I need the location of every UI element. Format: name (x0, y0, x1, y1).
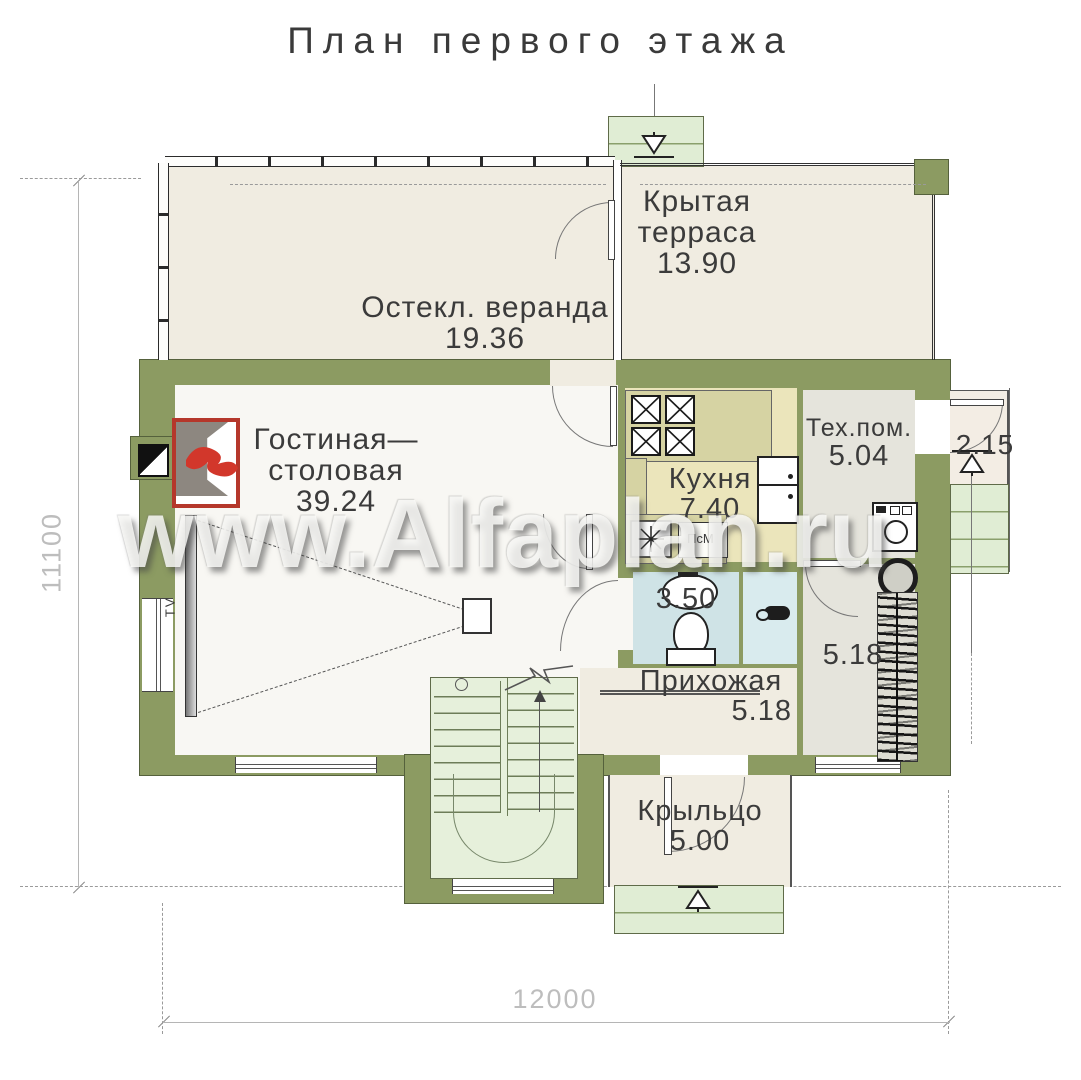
toilet-tank (666, 648, 716, 666)
veranda-label: Остекл. веранда 19.36 (345, 292, 625, 354)
floor-plan: 11100 12000 План первого этажа (0, 0, 1081, 1080)
entry-arrow-icon (632, 132, 676, 160)
terrace-post (915, 160, 948, 194)
door-opening (660, 755, 748, 775)
terrace-area: 13.90 (607, 248, 787, 279)
side-porch-label: 2.15 (930, 430, 1040, 459)
watermark: www.Alfaplan.ru (118, 478, 889, 590)
stove-icon (630, 394, 698, 458)
door-leaf (610, 386, 617, 446)
tv-label: TV (164, 596, 178, 617)
dimension-tick (73, 174, 85, 186)
hallway-label: Прихожая 5.18 (616, 666, 806, 726)
veranda-area: 19.36 (345, 323, 625, 354)
side-porch-edge (1009, 388, 1010, 572)
side-porch-steps (950, 484, 1009, 574)
axis-line (20, 178, 141, 179)
tech-area: 5.04 (801, 441, 917, 471)
page-title: План первого этажа (0, 20, 1081, 62)
veranda-glazed-wall-top (165, 156, 615, 167)
axis-line (971, 653, 972, 744)
door-leaf (950, 399, 1004, 406)
axis-line (971, 468, 972, 653)
entry-porch-area: 5.00 (616, 826, 784, 856)
stair-start-post (455, 678, 468, 691)
staircase (430, 677, 578, 879)
axis-line (654, 84, 655, 118)
corridor-label: 5.18 (806, 640, 900, 670)
axis-line (948, 790, 949, 1034)
stair-path-line (539, 700, 540, 812)
hallway-area: 5.18 (616, 696, 806, 726)
dimension-line-left (78, 182, 79, 888)
veranda-glazed-wall-left (158, 163, 169, 360)
dimension-tick (73, 881, 85, 893)
door-opening (550, 360, 616, 386)
dimension-label-bottom: 12000 (405, 984, 705, 1015)
axis-line (162, 903, 163, 1034)
terrace-wall-top (620, 163, 948, 166)
side-porch-area: 2.15 (930, 430, 1040, 459)
terrace-label: Крытая терраса 13.90 (607, 186, 787, 280)
media-stand (462, 598, 492, 634)
window (452, 879, 554, 894)
wardrobe-icon (877, 592, 918, 762)
entry-porch-label: Крыльцо 5.00 (616, 796, 784, 856)
tech-label: Тех.пом. 5.04 (801, 415, 917, 471)
dimension-line-bottom (163, 1022, 950, 1023)
stair-break-line (503, 664, 575, 694)
roof-overhang-line (230, 184, 606, 185)
dimension-label-left: 11100 (37, 473, 68, 633)
shower-handle-icon (764, 606, 790, 620)
entry-arrow-icon (676, 884, 720, 912)
window (235, 757, 377, 773)
corridor-area: 5.18 (806, 640, 900, 670)
chimney-vent (138, 444, 169, 477)
